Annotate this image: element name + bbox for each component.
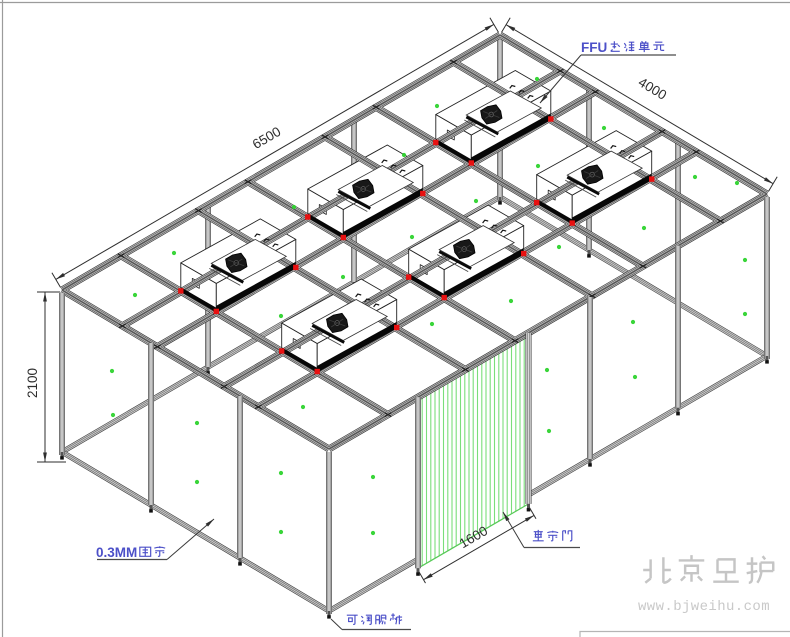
svg-text:2100: 2100 <box>25 368 40 398</box>
svg-text:0.3MM: 0.3MM <box>96 545 137 560</box>
svg-text:FFU: FFU <box>581 40 607 55</box>
svg-text:www.bjweihu.com: www.bjweihu.com <box>638 599 770 615</box>
